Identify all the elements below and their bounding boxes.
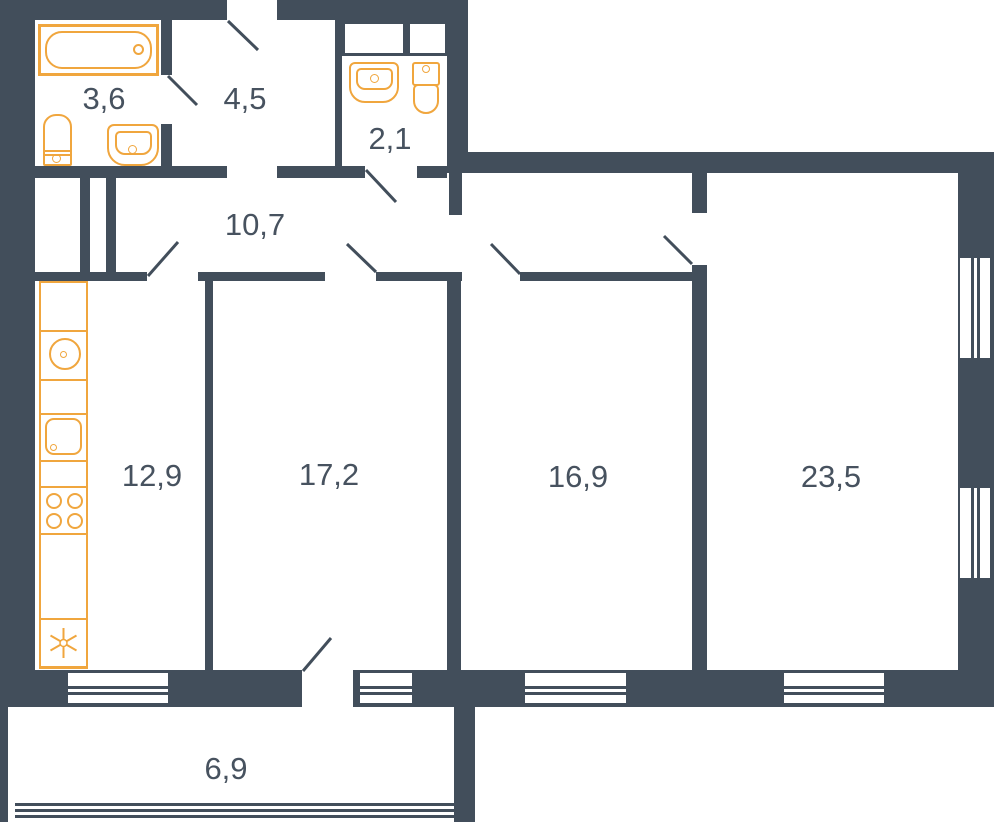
room-c-side-window-2 [960,488,990,578]
window-pane-line [977,488,980,578]
wall-left-outer [0,0,35,707]
room-c-area-label: 23,5 [801,459,861,495]
door-swing-room-b [491,244,520,274]
room-c-window [784,673,884,703]
door-swing-room-c [664,236,692,264]
room-c-side-window-1 [960,258,990,358]
window-pane-line [971,258,974,358]
wall-roomb-roomc-top [692,173,707,213]
door-swing-entrance [228,21,258,50]
washing-machine-hub [60,351,67,358]
room-b-window [525,673,626,703]
balcony-wall-left [0,707,8,822]
wall-bath-hall-bottom-c [417,166,447,178]
door-swing-kitchen [148,242,178,276]
refrigerator-icon [39,618,88,668]
door-swing-room-a [347,244,376,272]
kitchen-sink-drain [50,444,57,451]
kitchen-window [68,673,168,703]
wall-main-horizontal [447,152,994,173]
wc-area-label: 2,1 [368,121,411,157]
stove-icon [39,486,88,535]
room-b-area-label: 16,9 [548,459,608,495]
wall-closet-2 [106,178,116,272]
wall-bath-hall-bottom-b [277,166,365,178]
stove-burner [46,513,62,529]
balcony-area-label: 6,9 [204,751,247,787]
wall-wc-right-outer [447,0,468,173]
window-pane-line [977,258,980,358]
room-a-area-label: 17,2 [299,457,359,493]
stove-burner [67,493,83,509]
window-pane-line [68,692,168,695]
room-a-window [360,673,412,703]
wall-closet-1 [80,178,90,272]
window-pane-line [784,692,884,695]
stove-burner [67,513,83,529]
wall-corridor-bottom-c [376,272,462,281]
door-swing-wc [366,170,396,202]
window-pane-line [360,692,412,695]
wall-corridor-bottom-d [520,272,693,281]
balcony-glazing-line [15,809,454,812]
balcony-glazing-line [15,815,454,818]
window-pane-line [525,686,626,689]
bathroom-area-label: 3,6 [82,81,125,117]
wall-bath-hall-bottom-a [35,166,227,178]
window-pane-line [784,686,884,689]
wc-washbasin-drain [370,74,379,83]
balcony-glazing-line [15,803,454,806]
door-swing-bathroom [168,76,197,105]
floor-plan: 3,6 4,5 2,1 10,7 12,9 17,2 16,9 23,5 6,9 [0,0,994,822]
toilet-button [422,65,430,73]
window-pane-line [971,488,974,578]
toilet-bowl [413,84,439,114]
kitchen-area-label: 12,9 [122,458,182,494]
entry-hall-area-label: 4,5 [223,81,266,117]
window-pane-line [525,692,626,695]
duct-shaft-1 [345,24,403,53]
wall-roomb-roomc-main [692,265,707,670]
window-pane-line [360,686,412,689]
wall-right-outer [958,152,994,707]
wall-corridor-bottom-b [198,272,325,281]
balcony-wall-right [454,707,475,822]
corridor-area-label: 10,7 [225,207,285,243]
stove-burner [46,493,62,509]
wall-corridor-bottom-a [35,272,147,281]
wall-corridor-stub [449,173,462,215]
wall-bathroom-right-bottom [161,124,172,166]
balcony-door-opening [302,670,353,707]
water-heater-knob [52,154,61,163]
wall-rooma-roomb [447,281,461,670]
window-pane-line [68,686,168,689]
wall-bathroom-right-top [161,20,172,75]
wall-top-right-of-entrance [277,0,447,20]
bathtub-drain [133,44,144,55]
duct-shaft-2 [410,24,445,53]
wall-wc-left [335,20,342,168]
door-swing-balcony [303,638,331,671]
wall-kitchen-rooma [205,281,213,670]
washbasin-drain [128,145,137,154]
